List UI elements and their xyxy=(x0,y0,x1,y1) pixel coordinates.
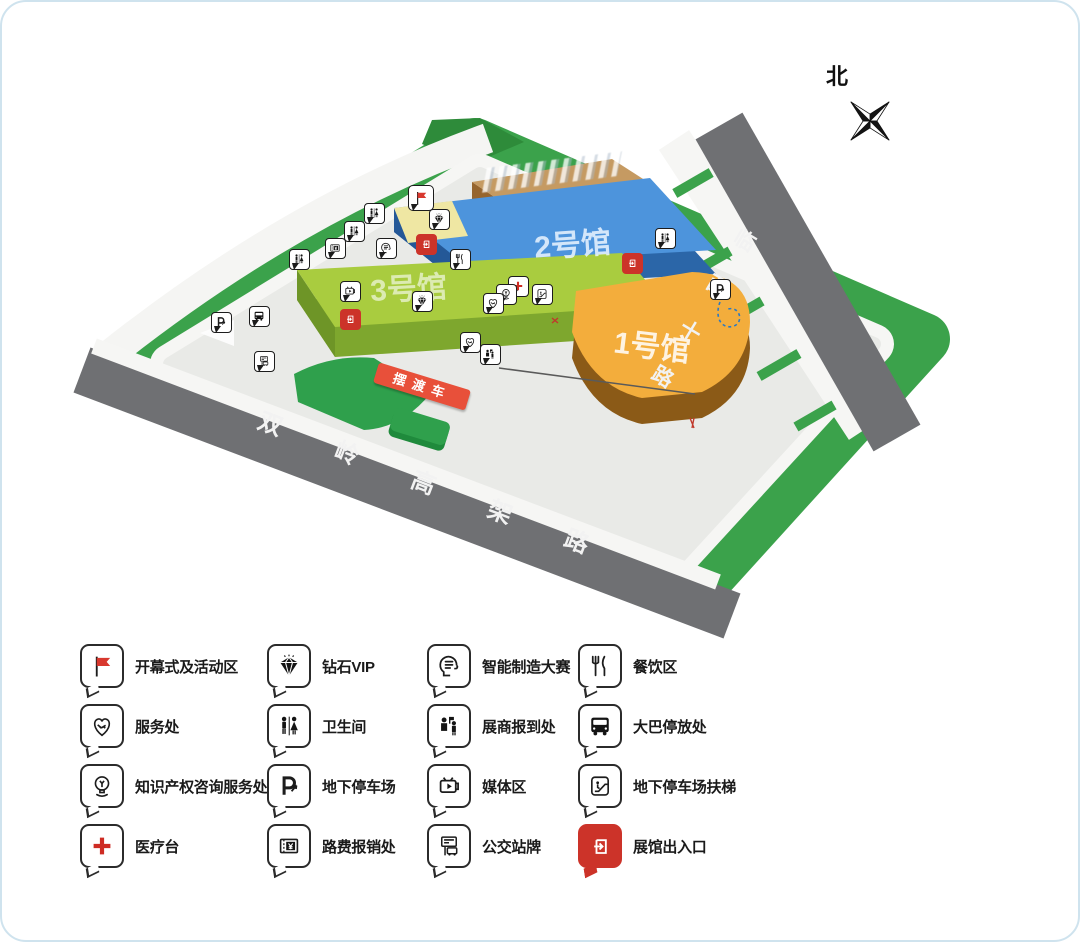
legend-item: 媒体区 xyxy=(427,756,578,816)
legend: 开幕式及活动区钻石VIP智能制造大赛餐饮区服务处卫生间展商报到处大巴停放处知识产… xyxy=(80,636,798,876)
legend-item-label: 智能制造大赛 xyxy=(482,656,570,677)
legend-item: 大巴停放处 xyxy=(578,696,798,756)
map-marker-exit xyxy=(340,309,361,330)
map-marker-parking xyxy=(710,279,731,300)
legend-item: 医疗台 xyxy=(80,816,267,876)
legend-item: 钻石VIP xyxy=(267,636,427,696)
legend-item: 知识产权咨询服务处 xyxy=(80,756,267,816)
legend-item: 服务处 xyxy=(80,696,267,756)
hall3-label: 3号馆 xyxy=(369,262,448,310)
map-marker-dining xyxy=(450,249,471,270)
map-marker-exit xyxy=(622,253,643,274)
legend-item-label: 医疗台 xyxy=(135,836,179,857)
legend-item: 开幕式及活动区 xyxy=(80,636,267,696)
map-marker-diamond xyxy=(412,291,433,312)
map-marker-parking xyxy=(211,312,232,333)
ai-head-icon xyxy=(427,644,471,688)
legend-item-label: 服务处 xyxy=(135,716,179,737)
compass: 北 xyxy=(814,57,924,167)
map-marker-bus xyxy=(249,306,270,327)
legend-item-label: 路费报销处 xyxy=(322,836,396,857)
map-marker-diamond xyxy=(429,209,450,230)
map-marker-toilet xyxy=(344,221,365,242)
compass-star-icon xyxy=(838,89,902,153)
map-marker-toilet xyxy=(364,203,385,224)
toilet-icon xyxy=(267,704,311,748)
map-marker-busstop xyxy=(254,351,275,372)
legend-item: 卫生间 xyxy=(267,696,427,756)
legend-item-label: 钻石VIP xyxy=(322,656,375,677)
legend-item-label: 展商报到处 xyxy=(482,716,556,737)
map-marker-ai-head xyxy=(376,238,397,259)
map-marker-toll xyxy=(325,238,346,259)
map-marker-flag xyxy=(408,185,434,211)
legend-item: 餐饮区 xyxy=(578,636,798,696)
legend-item-label: 公交站牌 xyxy=(482,836,541,857)
map-marker-exit xyxy=(416,234,437,255)
media-icon xyxy=(427,764,471,808)
legend-item-label: 知识产权咨询服务处 xyxy=(135,776,267,797)
escalator-icon xyxy=(578,764,622,808)
busstop-icon xyxy=(427,824,471,868)
map-marker-toilet xyxy=(655,228,676,249)
map-marker-toilet xyxy=(289,249,310,270)
map-marker-handshake xyxy=(483,293,504,314)
map-marker-escalator xyxy=(532,284,553,305)
site-map-page: 2号馆 3号馆 1号馆 临西十路 双岭高架路 摆渡车 北 开幕式及活动区钻石VI… xyxy=(0,0,1080,942)
legend-item-label: 展馆出入口 xyxy=(633,836,707,857)
north-label: 北 xyxy=(826,59,848,91)
diamond-icon xyxy=(267,644,311,688)
legend-item-label: 地下停车场 xyxy=(322,776,396,797)
legend-item: 路费报销处 xyxy=(267,816,427,876)
toll-icon xyxy=(267,824,311,868)
legend-item: 地下停车场 xyxy=(267,756,427,816)
regdesk-icon xyxy=(427,704,471,748)
map-marker-media xyxy=(340,281,361,302)
legend-item: 智能制造大赛 xyxy=(427,636,578,696)
bulb-icon xyxy=(80,764,124,808)
exit-icon xyxy=(578,824,622,868)
handshake-icon xyxy=(80,704,124,748)
legend-item: 展商报到处 xyxy=(427,696,578,756)
dining-icon xyxy=(578,644,622,688)
legend-item-label: 大巴停放处 xyxy=(633,716,707,737)
legend-item-label: 卫生间 xyxy=(322,716,366,737)
legend-item-label: 开幕式及活动区 xyxy=(135,656,238,677)
legend-item-label: 地下停车场扶梯 xyxy=(633,776,736,797)
map-marker-handshake xyxy=(460,332,481,353)
map-marker-regdesk xyxy=(480,344,501,365)
bus-icon xyxy=(578,704,622,748)
hall2-label: 2号馆 xyxy=(533,217,613,266)
legend-item: 展馆出入口 xyxy=(578,816,798,876)
legend-item: 地下停车场扶梯 xyxy=(578,756,798,816)
legend-item-label: 媒体区 xyxy=(482,776,526,797)
flag-icon xyxy=(80,644,124,688)
medical-icon xyxy=(80,824,124,868)
parking-icon xyxy=(267,764,311,808)
legend-item: 公交站牌 xyxy=(427,816,578,876)
legend-item-label: 餐饮区 xyxy=(633,656,677,677)
